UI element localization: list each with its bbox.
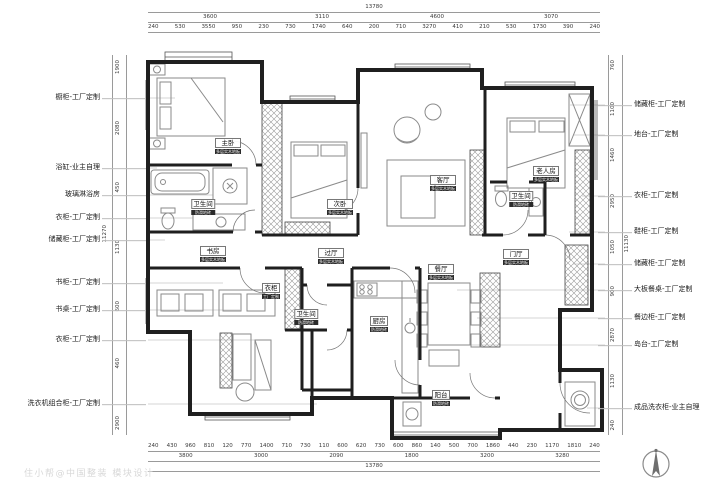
dimension-value: 760 <box>611 60 617 71</box>
callout-wardrobe-r: 衣柜-工厂定制 <box>634 192 679 200</box>
dimension-value: 240 <box>611 420 617 431</box>
dim-top-overall: 13780 <box>365 5 383 11</box>
dim-line-bottom-overall <box>148 471 600 472</box>
dimension-value: 530 <box>175 25 186 31</box>
callout-laundry-combo: 洗衣机组合柜-工厂定制 <box>27 400 100 408</box>
dim-line-bottom-tier1 <box>148 451 600 452</box>
dim-top-seg: 3110 <box>315 15 329 21</box>
dimension-value: 710 <box>395 25 406 31</box>
dim-line-left-inner <box>126 55 127 435</box>
dim-top-seg: 3070 <box>544 15 558 21</box>
dim-top-seg: 4600 <box>430 15 444 21</box>
dim-col-right: 760110014602950105090028701130240 <box>611 60 617 430</box>
dimension-value: 1900 <box>116 60 122 74</box>
dimension-value: 3550 <box>201 25 215 31</box>
room-label-bathroom-3: 卫生间防滑地砖 <box>294 309 318 325</box>
callout-sideboard: 餐边柜-工厂定制 <box>634 314 686 322</box>
dimension-value: 950 <box>232 25 243 31</box>
dim-line-top-tier3 <box>148 32 600 33</box>
dim-bottom-overall: 13780 <box>365 464 383 470</box>
floorplan-drawing <box>145 38 607 445</box>
callout-bathtub: 浴缸-业主自理 <box>55 164 100 172</box>
dimension-value: 3280 <box>555 454 569 460</box>
dimension-value: 210 <box>479 25 490 31</box>
dim-line-bottom-tier2 <box>148 461 600 462</box>
dimension-value: 1800 <box>405 454 419 460</box>
dimension-value: 2870 <box>611 328 617 342</box>
callout-shower-room: 玻璃淋浴房 <box>65 191 100 199</box>
dimension-value: 390 <box>563 25 574 31</box>
dim-line-left-outer <box>112 55 113 435</box>
callout-laundry-unit: 成品洗衣柜-业主自理 <box>634 404 700 412</box>
dimension-value: 200 <box>369 25 380 31</box>
room-label-hallway: 过厅多层实木地板 <box>318 248 344 264</box>
room-label-dining-room: 餐厅多层实木地板 <box>428 264 454 280</box>
dimension-value: 640 <box>342 25 353 31</box>
floorplan-canvas: 13780 3600 3110 4600 3070 24053035509502… <box>0 0 701 497</box>
dimension-value: 3000 <box>254 454 268 460</box>
room-label-bedroom-2: 次卧多层实木地板 <box>327 199 353 215</box>
dimension-value: 530 <box>506 25 517 31</box>
dimension-value: 3270 <box>422 25 436 31</box>
dim-row-top: 2405303550950230730174064020071032704102… <box>148 25 600 31</box>
dimension-value: 460 <box>116 358 122 369</box>
room-label-bathroom-1: 卫生间防滑地砖 <box>191 199 215 215</box>
dim-col-left: 1900208045011306004602900 <box>116 60 122 430</box>
dimension-value: 730 <box>285 25 296 31</box>
dimension-value: 240 <box>148 25 159 31</box>
room-label-balcony: 阳台防滑地砖 <box>432 390 450 406</box>
callout-bookcase: 书柜-工厂定制 <box>55 279 100 287</box>
dimension-value: 1730 <box>533 25 547 31</box>
windows <box>145 52 597 435</box>
dimension-value: 1460 <box>611 148 617 162</box>
dim-right-overall: 11130 <box>625 235 631 253</box>
room-label-foyer: 门厅多层实木地板 <box>503 249 529 265</box>
room-label-master-bedroom: 主卧多层实木地板 <box>215 138 241 154</box>
dimension-value: 3200 <box>480 454 494 460</box>
dim-top-seg: 3600 <box>203 15 217 21</box>
room-label-living-room: 客厅多层实木地板 <box>430 175 456 191</box>
callout-storage: 储藏柜-工厂定制 <box>48 236 100 244</box>
dimension-value: 1740 <box>312 25 326 31</box>
room-label-kitchen: 厨房防滑地砖 <box>370 316 388 332</box>
dimension-value: 2080 <box>116 121 122 135</box>
room-label-elder-room: 老人房多层实木地板 <box>533 166 559 182</box>
dimension-value: 240 <box>590 25 601 31</box>
callout-shoe-cabinet: 鞋柜-工厂定制 <box>634 228 679 236</box>
callout-storage-r2: 储藏柜-工厂定制 <box>634 260 686 268</box>
room-label-wardrobe: 衣柜工厂定制 <box>262 283 280 299</box>
dimension-value: 1050 <box>611 240 617 254</box>
dim-line-top-tier2 <box>148 22 600 23</box>
dimension-value: 1130 <box>611 374 617 388</box>
callout-storage-r: 储藏柜-工厂定制 <box>634 101 686 109</box>
dimension-value: 230 <box>258 25 269 31</box>
callout-dining-table: 大板餐桌-工厂定制 <box>634 286 693 294</box>
callout-wardrobe-2: 衣柜-工厂定制 <box>55 336 100 344</box>
dimension-value: 450 <box>116 182 122 193</box>
room-label-bathroom-2: 卫生间防滑地砖 <box>509 191 533 207</box>
callout-platform: 地台-工厂定制 <box>634 131 679 139</box>
dim-row-bottom-2: 380030002090180032003280 <box>148 454 600 460</box>
dimension-value: 2090 <box>329 454 343 460</box>
watermark: 住小帮@中国整装 模块设计 <box>24 466 154 479</box>
callout-wardrobe: 衣柜-工厂定制 <box>55 214 100 222</box>
callout-island: 岛台-工厂定制 <box>634 341 679 349</box>
room-label-study: 书房多层实木地板 <box>200 246 226 262</box>
dim-line-right-inner <box>608 55 609 435</box>
dim-line-top-overall <box>148 12 600 13</box>
north-arrow-icon <box>638 444 674 484</box>
dimension-value: 410 <box>452 25 463 31</box>
callout-desk: 书桌-工厂定制 <box>55 306 100 314</box>
dimension-value: 1130 <box>116 240 122 254</box>
dimension-value: 2900 <box>116 416 122 430</box>
dimension-value: 3800 <box>179 454 193 460</box>
dim-line-right-outer <box>622 55 623 435</box>
callout-cabinet: 橱柜-工厂定制 <box>55 94 100 102</box>
